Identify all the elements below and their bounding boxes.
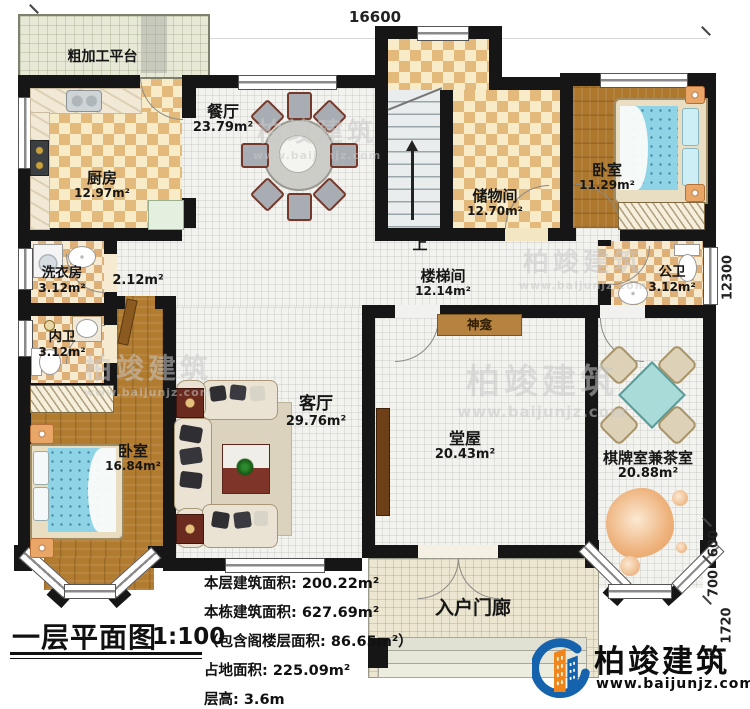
sofa-pillow <box>179 471 203 490</box>
wall <box>182 75 238 88</box>
room-area: 23.79m² <box>184 121 262 136</box>
wall <box>375 228 505 241</box>
window <box>238 75 337 90</box>
nightstand <box>685 184 705 202</box>
room-name: 客厅 <box>278 395 354 415</box>
wall <box>104 241 117 254</box>
window <box>417 26 469 41</box>
room-name: 卧室 <box>572 162 642 179</box>
wall <box>30 303 104 316</box>
dining-table-center <box>279 135 317 173</box>
wall <box>645 305 716 318</box>
chess-rug-dot <box>620 556 640 576</box>
wall <box>30 75 140 88</box>
threshold <box>104 325 117 363</box>
dim-right-700: 700 <box>707 562 722 606</box>
room-label-storage: 储物间 12.70m² <box>458 188 532 219</box>
wall <box>489 26 502 77</box>
dim-right-12300: 12300 <box>721 240 736 316</box>
room-label-living: 客厅 29.76m² <box>278 395 354 429</box>
room-label-hall: 堂屋 20.43m² <box>428 430 502 463</box>
end-table <box>176 388 204 418</box>
dining-chair <box>287 92 312 120</box>
wall <box>598 284 611 305</box>
sofa-pillow <box>211 511 230 529</box>
wall <box>440 90 453 241</box>
room-area: 12.14m² <box>406 285 480 299</box>
wall <box>498 545 585 558</box>
fridge <box>148 200 184 230</box>
threshold <box>418 545 498 558</box>
room-name: 内卫 <box>30 330 94 346</box>
room-area: 20.43m² <box>428 448 502 463</box>
wall <box>375 88 388 241</box>
sofa-pillow <box>229 384 246 401</box>
wall <box>182 198 196 228</box>
wall <box>104 292 117 325</box>
stat-line: 本层建筑面积: 200.22m² <box>204 572 384 593</box>
nightstand <box>685 86 705 104</box>
wall <box>323 558 362 571</box>
floor-stairs <box>388 90 440 235</box>
room-label-stairwell: 楼梯间 12.14m² <box>406 268 480 299</box>
room-name: 储物间 <box>458 188 532 205</box>
room-area: 29.76m² <box>278 415 354 430</box>
dim-right-600: 600 <box>707 522 722 566</box>
bed-pillow <box>682 148 699 186</box>
room-name: 棋牌室兼茶室 <box>582 450 714 467</box>
sofa-pillow <box>209 385 227 402</box>
room-name: 堂屋 <box>428 430 502 448</box>
stairs-up-label: 上 <box>406 236 434 253</box>
room-area: 12.70m² <box>458 205 532 219</box>
dimension-tick <box>29 4 39 14</box>
sofa-pillow <box>179 447 203 466</box>
sofa-pillow <box>249 385 265 401</box>
window <box>225 558 325 573</box>
room-label-bedroom-ne: 卧室 11.29m² <box>572 162 642 193</box>
dining-chair <box>287 193 312 221</box>
room-label-laundry: 洗衣房 3.12m² <box>28 266 96 295</box>
up-text: 上 <box>406 236 434 253</box>
wall <box>117 296 125 309</box>
kitchen-sink <box>66 90 102 112</box>
wall <box>703 318 716 544</box>
room-name: 卧室 <box>98 443 168 460</box>
bed-pillow <box>33 451 49 485</box>
room-label-public-bath: 公卫 3.12m² <box>640 265 704 294</box>
stat-line: 本栋建筑面积: 627.69m² <box>204 601 384 622</box>
wardrobe <box>30 385 114 413</box>
brand-logo-icon <box>532 638 590 706</box>
room-name: 餐厅 <box>184 103 262 121</box>
brand-logo: 柏竣建筑 www.baijunjz.com <box>532 636 742 706</box>
room-area: 2.12m² <box>106 274 170 289</box>
nightstand <box>30 538 54 558</box>
wall <box>686 73 716 86</box>
sofa-pillow <box>233 511 252 529</box>
platform <box>18 14 210 79</box>
stairs-arrow-head <box>406 140 418 151</box>
room-area: 3.12m² <box>30 346 94 360</box>
dim-top: 16600 <box>335 8 415 26</box>
room-label-dining: 餐厅 23.79m² <box>184 103 262 136</box>
floor-storage-upper <box>388 39 489 90</box>
wall <box>598 240 611 246</box>
room-area: 11.29m² <box>572 179 642 193</box>
sofa-pillow <box>254 511 268 526</box>
room-name: 洗衣房 <box>28 266 96 282</box>
room-area: 16.84m² <box>98 460 168 474</box>
stat-line: 层高: 3.6m <box>204 688 384 709</box>
room-name: 楼梯间 <box>406 268 480 285</box>
room-label-bedroom-sw: 卧室 16.84m² <box>98 443 168 474</box>
threshold <box>600 305 645 318</box>
room-area: 12.97m² <box>66 187 138 201</box>
room-label-chess-tea: 棋牌室兼茶室 20.88m² <box>582 450 714 482</box>
room-label-platform: 粗加工平台 <box>35 49 170 65</box>
shrine-cabinet: 神龛 <box>437 314 522 336</box>
room-name: 厨房 <box>66 170 138 187</box>
wall <box>362 318 375 558</box>
room-name: 公卫 <box>640 265 704 281</box>
stairs-arrow-shaft <box>411 150 414 220</box>
area-stats: 本层建筑面积: 200.22m² 本栋建筑面积: 627.69m² （包含阁楼层… <box>204 572 384 709</box>
room-area: 3.12m² <box>640 281 704 295</box>
shrine-label: 神龛 <box>467 317 492 332</box>
window <box>703 247 718 305</box>
nightstand <box>30 424 54 444</box>
room-label-kitchen: 厨房 12.97m² <box>66 170 138 201</box>
stat-line: 占地面积: 225.09m² <box>204 659 384 680</box>
chess-rug-dot <box>672 490 688 506</box>
window <box>600 73 688 88</box>
floor-plan: 神龛 柏竣建筑 www.baijunjz.com 柏竣建筑 www.baijun… <box>0 0 750 709</box>
stat-line: （包含阁楼层面积: 86.65m²） <box>204 630 384 651</box>
tv-cabinet <box>376 408 390 516</box>
end-table <box>176 514 204 544</box>
wall <box>560 228 576 241</box>
plan-title: 一层平面图 <box>12 616 157 656</box>
brand-url: www.baijunjz.com <box>596 676 750 692</box>
title-underline <box>10 658 202 659</box>
room-label-hallway: 2.12m² <box>106 274 170 289</box>
room-area: 20.88m² <box>582 467 714 482</box>
room-area: 3.12m² <box>28 282 96 296</box>
threshold <box>395 305 440 318</box>
threshold <box>505 228 548 241</box>
stove <box>30 140 49 176</box>
brand-name: 柏竣建筑 <box>594 636 730 681</box>
wall <box>375 26 388 88</box>
wall <box>362 305 395 318</box>
dimension-tick <box>701 26 711 36</box>
title-underline <box>10 652 202 655</box>
room-label-inner-bath: 内卫 3.12m² <box>30 330 94 359</box>
wall <box>155 296 163 309</box>
bed-pillow <box>682 108 699 146</box>
room-name: 入户门廊 <box>408 598 538 620</box>
room-name: 粗加工平台 <box>35 49 170 65</box>
wall <box>585 318 598 540</box>
chess-rug-dot <box>676 542 687 553</box>
dining-chair <box>330 143 358 168</box>
wall <box>548 228 560 241</box>
window-bay <box>608 584 672 599</box>
room-label-porch: 入户门廊 <box>408 598 538 620</box>
window-bay <box>64 584 116 599</box>
wardrobe <box>618 202 705 230</box>
dining-chair <box>241 143 269 168</box>
wall <box>560 73 600 86</box>
wall <box>362 545 418 558</box>
plant <box>236 458 254 476</box>
bed-pillow <box>33 487 49 521</box>
